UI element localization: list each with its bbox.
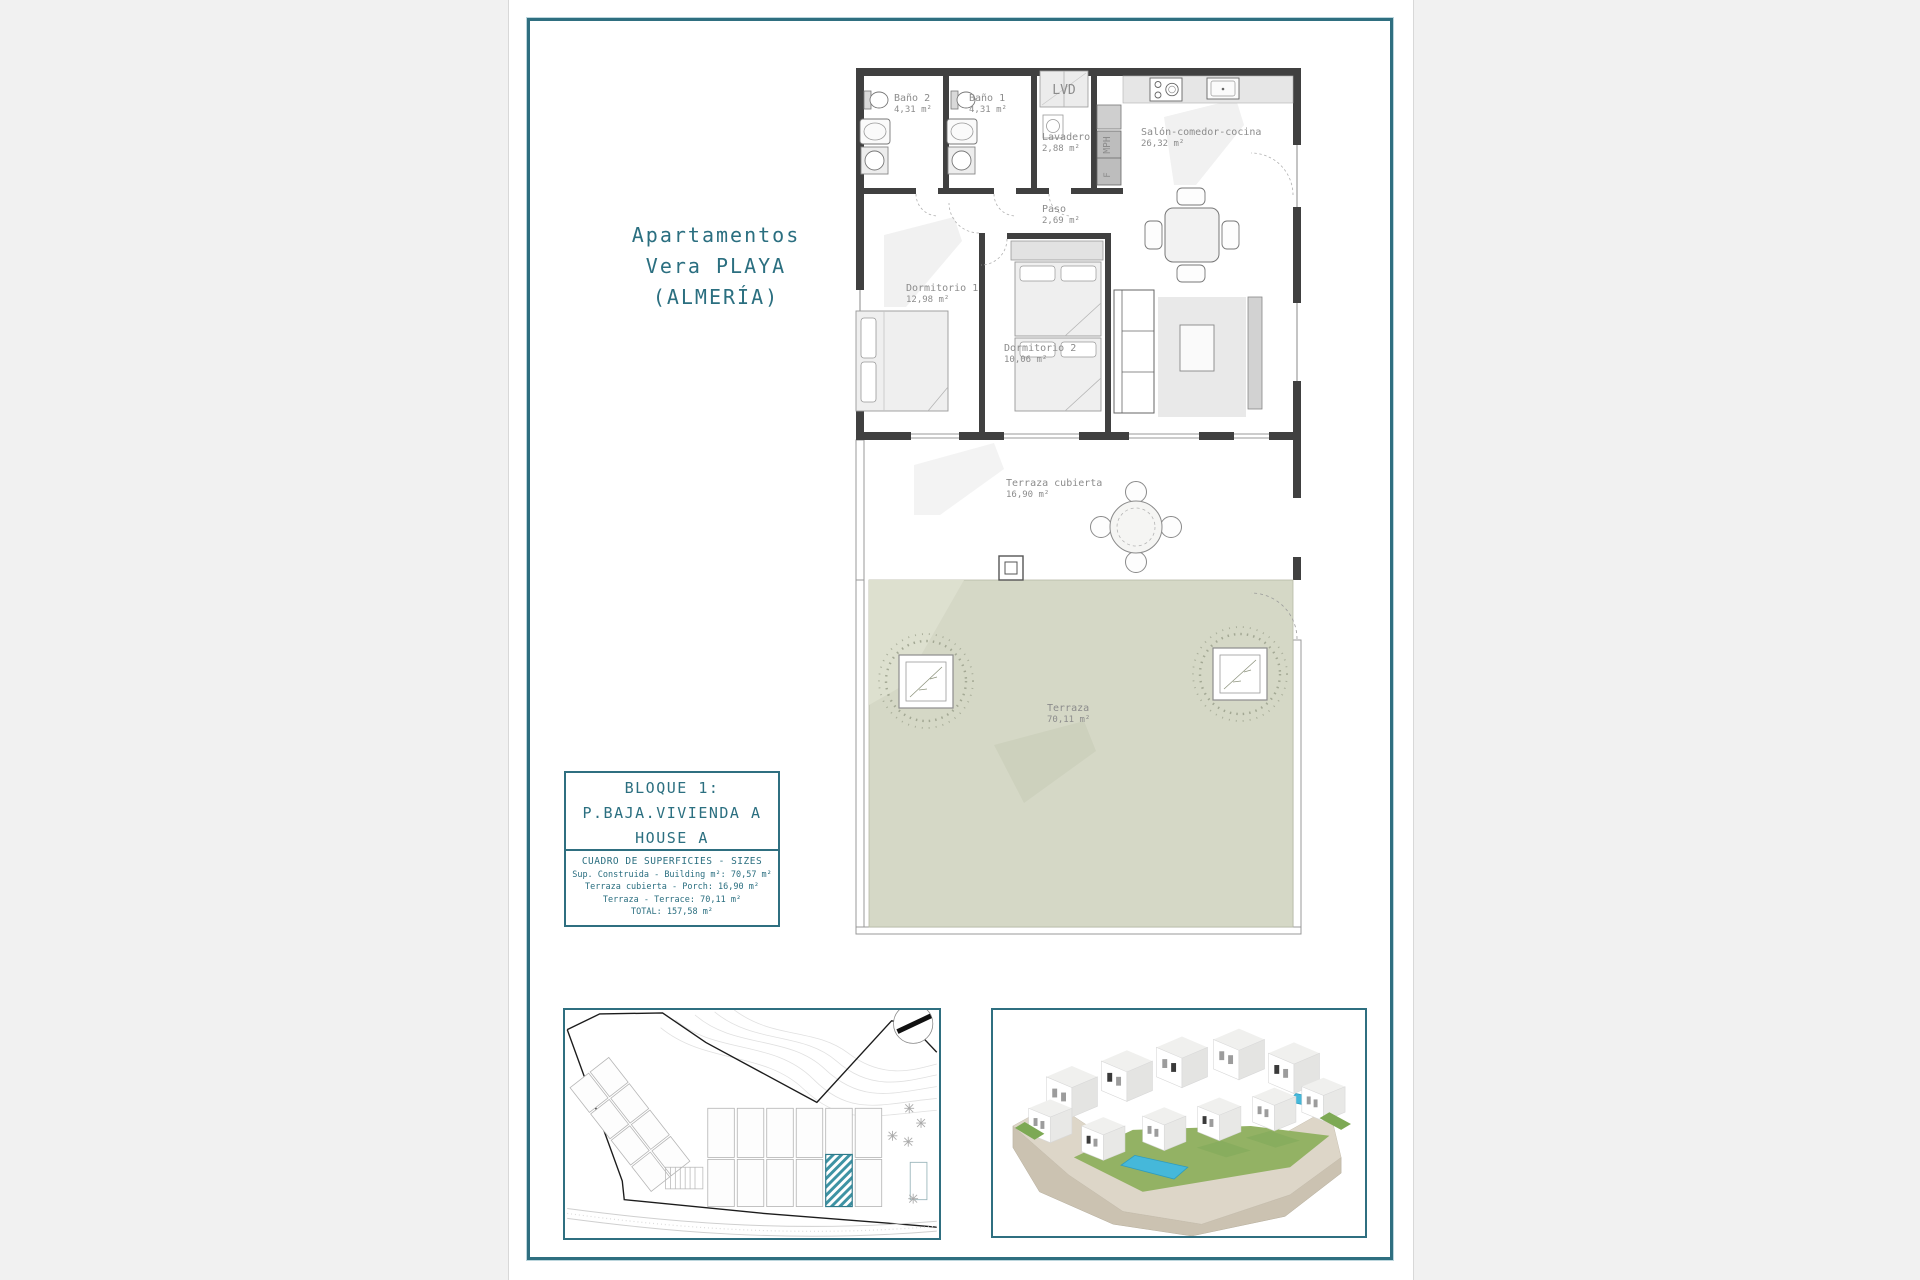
tv-unit: [1248, 297, 1262, 409]
plan-sheet: Apartamentos Vera PLAYA (ALMERÍA): [508, 0, 1414, 1280]
project-title: Apartamentos Vera PLAYA (ALMERÍA): [601, 220, 831, 313]
highlighted-unit: [826, 1154, 853, 1206]
floor-shade: [914, 443, 1004, 515]
sizes-row: Terraza cubierta - Porch: 16,90 m²: [566, 881, 778, 894]
kitchen-counter: [1123, 76, 1293, 103]
room-label: Terraza cubierta: [1006, 478, 1102, 489]
terrace-wall: [1293, 440, 1301, 498]
sofa: [1114, 290, 1154, 413]
room-area: 16,90 m²: [1006, 490, 1049, 500]
project-title-line1: Apartamentos: [601, 220, 831, 251]
sizes-row: Sup. Construida - Building m²: 70,57 m²: [566, 869, 778, 882]
block-info-box: BLOQUE 1: P.BAJA.VIVIENDA A HOUSE A: [564, 771, 780, 851]
sizes-row: TOTAL: 157,58 m²: [566, 906, 778, 919]
sliding-doors: [856, 432, 1301, 440]
sizes-header: CUADRO DE SUPERFICIES - SIZES: [566, 856, 778, 869]
dining-table: [1145, 188, 1239, 282]
site-plan-drawing: [565, 1010, 939, 1238]
room-label: F: [1103, 172, 1113, 177]
block-line1: BLOQUE 1:: [566, 776, 778, 801]
sizes-row: Terraza - Terrace: 70,11 m²: [566, 894, 778, 907]
room-label: Paso: [1042, 204, 1066, 215]
block-line2: P.BAJA.VIVIENDA A: [566, 801, 778, 826]
room-label: Terraza: [1047, 703, 1089, 714]
room-label: Lavadero: [1042, 132, 1090, 143]
block-line3: HOUSE A: [566, 826, 778, 851]
project-title-line2: Vera PLAYA: [601, 251, 831, 282]
room-area: 26,32 m²: [1141, 139, 1184, 149]
room-area: 12,98 m²: [906, 295, 949, 305]
room-area: 4,31 m²: [969, 105, 1007, 115]
project-title-line3: (ALMERÍA): [601, 282, 831, 313]
terrace-wall: [856, 580, 864, 933]
room-area: 4,31 m²: [894, 105, 932, 115]
room-label: LVD: [1052, 83, 1076, 98]
terrace-wall: [1293, 557, 1301, 580]
room-label: Baño 1: [969, 93, 1005, 104]
floor-plan-drawing: Baño 2 4,31 m² Baño 1 4,31 m² LVD Lavade…: [844, 45, 1314, 945]
room-label: Dormitorio 1: [906, 283, 978, 294]
room-area: 2,69 m²: [1042, 216, 1080, 226]
sizes-table: CUADRO DE SUPERFICIES - SIZES Sup. Const…: [564, 851, 780, 927]
coffee-table: [1180, 325, 1214, 371]
room-label: Salón-comedor-cocina: [1141, 126, 1261, 138]
room-area: 10,06 m²: [1004, 355, 1047, 365]
room-area: 70,11 m²: [1047, 715, 1090, 725]
bed-dormitorio1: [856, 311, 948, 411]
aerial-render-figure: [991, 1008, 1367, 1238]
terrace-wall: [856, 927, 1301, 934]
floor-drain: [999, 556, 1023, 580]
bathroom2-fixtures: [860, 91, 890, 174]
room-label: MPH: [1102, 136, 1113, 153]
laundry-closet: [1040, 71, 1088, 138]
wall: [1293, 68, 1301, 440]
room-label: Dormitorio 2: [1004, 343, 1076, 354]
terrace-wall: [856, 440, 864, 580]
room-label: Baño 2: [894, 93, 930, 104]
room-area: 2,88 m²: [1042, 144, 1080, 154]
outdoor-table: [1091, 482, 1182, 573]
bed-dormitorio2: [1011, 241, 1103, 411]
terrace-wall: [1293, 640, 1301, 933]
aerial-render-drawing: [993, 1010, 1365, 1236]
site-plan-figure: [563, 1008, 941, 1240]
